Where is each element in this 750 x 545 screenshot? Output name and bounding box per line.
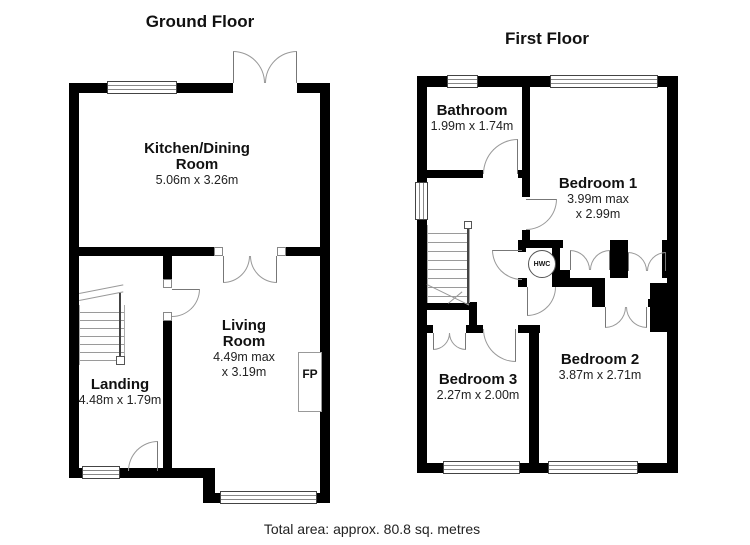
cupboard-door-left-leaf [433,333,450,350]
room-name: Room [174,334,314,350]
interior-door [172,289,200,317]
wall-segment [320,83,330,503]
window [107,81,177,94]
wardrobe-door-right-leaf [590,250,610,270]
stair-railing [467,225,469,305]
room-dimensions: 5.06m x 3.26m [112,173,282,188]
wardrobe-door-left-leaf [570,250,590,270]
room-dimensions: 4.49m max [174,350,314,365]
window [415,182,428,220]
entrance-door [128,441,158,471]
room-label-bedroom3: Bedroom 3 2.27m x 2.00m [403,372,553,403]
wall-segment [417,463,443,473]
bedroom3-door [483,329,516,362]
room-name: Bathroom [402,103,542,119]
floorplan-canvas: Ground Floor FP Kitchen/Dining Room 5.06… [0,0,750,545]
window [550,75,658,88]
wall-segment [417,170,483,178]
room-label-bedroom1: Bedroom 1 3.99m max x 2.99m [523,176,673,222]
window [82,466,120,479]
wall-segment [286,247,330,256]
wardrobe-door-left-leaf [628,252,647,271]
chimney-breast [650,283,677,332]
wall-segment [520,463,548,473]
hot-water-cylinder: HWC [528,250,556,278]
stair-newel-post [116,356,125,365]
room-label-kitchen-dining: Kitchen/Dining Room 5.06m x 3.26m [112,141,282,188]
hwc-cupboard-door [492,250,522,280]
wall-segment [69,83,79,478]
room-name: Landing [50,377,190,393]
cupboard-door-right-leaf [449,333,466,350]
window [447,75,478,88]
door-jamb [277,247,286,256]
window [220,491,317,504]
total-area-note: Total area: approx. 80.8 sq. metres [172,521,572,537]
wall-segment [478,76,550,87]
ground-floor-title: Ground Floor [100,12,300,32]
room-name: Bedroom 1 [523,176,673,192]
room-label-living-room: Living Room 4.49m max x 3.19m [174,318,314,380]
room-name: Room [112,157,282,173]
window [443,461,520,474]
french-door-left-leaf [233,51,265,83]
wall-segment [552,270,570,278]
bedroom2-door [527,287,556,316]
wall-segment [648,299,657,307]
french-door-right-leaf [250,256,277,283]
wardrobe-door-right-leaf [647,252,666,271]
stair-newel-post [464,221,472,229]
bathroom-door [483,139,518,174]
window [548,461,638,474]
wall-segment [466,325,483,333]
wall-segment [417,76,427,473]
room-dimensions: x 2.99m [523,207,673,222]
room-name: Kitchen/Dining [112,141,282,157]
wall-segment [518,325,540,333]
wall-segment [417,325,433,333]
room-name: Bedroom 3 [403,372,553,388]
wardrobe-door-right-leaf [626,307,647,328]
wall-segment [638,463,677,473]
door-jamb [214,247,223,256]
first-floor-title: First Floor [447,29,647,49]
french-door-right-leaf [265,51,297,83]
stair-break-line [79,291,123,301]
wall-segment [69,247,214,256]
room-dimensions: 2.27m x 2.00m [403,388,553,403]
room-dimensions: x 3.19m [174,365,314,380]
room-label-landing: Landing 4.48m x 1.79m [50,377,190,408]
wall-segment [610,240,628,278]
french-door-left-leaf [223,256,250,283]
staircase [427,225,470,303]
wardrobe-door-left-leaf [605,307,626,328]
room-label-bathroom: Bathroom 1.99m x 1.74m [402,103,542,134]
room-dimensions: 3.99m max [523,192,673,207]
room-dimensions: 4.48m x 1.79m [50,393,190,408]
room-name: Bedroom 2 [525,352,675,368]
room-name: Living [174,318,314,334]
door-jamb [163,312,172,321]
wall-segment [592,278,605,307]
door-jamb [163,279,172,288]
room-dimensions: 1.99m x 1.74m [402,119,542,134]
stair-railing [119,293,121,359]
